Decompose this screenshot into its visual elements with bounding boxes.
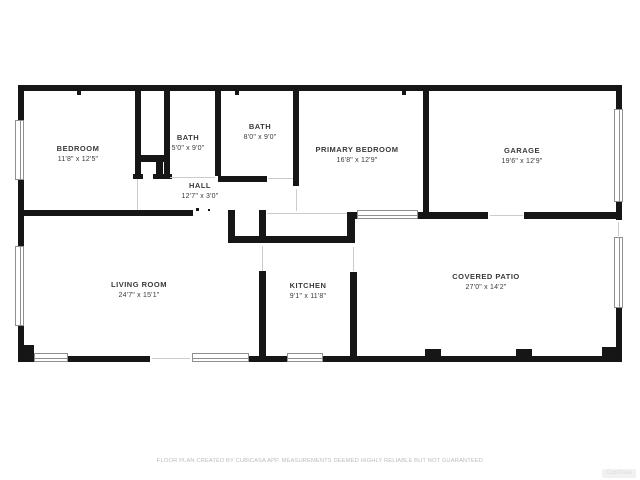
exterior-wall-top: [18, 85, 622, 91]
room-label-garage: GARAGE 19'6" x 12'9": [502, 146, 543, 166]
interior-wall-bath2-bottom: [218, 176, 267, 182]
patio-post: [425, 349, 441, 357]
interior-wall-bath-divider: [215, 91, 221, 176]
hall-opening: [267, 213, 347, 214]
patio-post: [516, 349, 532, 357]
window: [192, 353, 249, 362]
primary-bedroom-door-opening: [296, 189, 297, 211]
wall-end-cap: [133, 174, 143, 179]
door-opening: [618, 222, 619, 236]
room-name: PRIMARY BEDROOM: [316, 145, 399, 156]
door-opening: [152, 358, 190, 359]
window: [287, 353, 323, 362]
interior-wall-garage-left: [423, 91, 429, 219]
interior-wall-primary-left: [293, 91, 299, 186]
room-dims: 5'0" x 9'0": [172, 144, 205, 153]
room-name: HALL: [182, 181, 219, 192]
wall-tick: [77, 91, 81, 95]
window: [15, 246, 24, 326]
room-dims: 16'8" x 12'9": [316, 156, 399, 165]
room-dims: 9'1" x 11'8": [290, 292, 327, 301]
kitchen-patio-opening: [353, 247, 354, 271]
room-name: GARAGE: [502, 146, 543, 157]
patio-screen: [614, 237, 623, 308]
sliding-door-opening: [150, 356, 192, 362]
room-label-bath-2: BATH 8'0" x 9'0": [244, 122, 277, 142]
interior-wall-living-top: [18, 210, 193, 216]
room-dims: 24'7" x 15'1": [111, 291, 167, 300]
room-dims: 11'8" x 12'5": [57, 155, 100, 164]
room-label-covered-patio: COVERED PATIO 27'0" x 14'2": [452, 272, 519, 292]
room-label-bath-1: BATH 5'0" x 9'0": [172, 133, 205, 153]
interior-wall-kitchen-left: [259, 271, 266, 362]
room-label-bedroom: BEDROOM 11'8" x 12'5": [57, 144, 100, 164]
room-dims: 12'7" x 3'0": [182, 192, 219, 201]
room-label-primary-bedroom: PRIMARY BEDROOM 16'8" x 12'9": [316, 145, 399, 165]
window: [34, 353, 68, 362]
disclaimer-text: FLOOR PLAN CREATED BY CUBICASA APP. MEAS…: [0, 458, 640, 464]
room-label-hall: HALL 12'7" x 3'0": [182, 181, 219, 201]
wall-tick: [235, 91, 239, 95]
patio-side-opening: [616, 220, 622, 237]
room-name: KITCHEN: [290, 281, 327, 292]
room-name: LIVING ROOM: [111, 280, 167, 291]
wall-tick: [402, 91, 406, 95]
room-dims: 27'0" x 14'2": [452, 283, 519, 292]
door-jamb-tick: [196, 208, 199, 211]
garage-door: [614, 109, 623, 202]
bath-door-opening: [268, 178, 293, 179]
room-name: COVERED PATIO: [452, 272, 519, 283]
bath-door-opening: [170, 177, 215, 178]
watermark-badge: CubiCasa: [602, 469, 636, 478]
bedroom-door-opening: [137, 179, 138, 210]
door-opening: [490, 215, 523, 216]
floor-plan-canvas: BEDROOM 11'8" x 12'5" BATH 5'0" x 9'0" B…: [0, 0, 640, 480]
room-dims: 19'6" x 12'9": [502, 157, 543, 166]
room-name: BATH: [244, 122, 277, 133]
room-name: BEDROOM: [57, 144, 100, 155]
corner-block-bottom-left: [18, 345, 34, 362]
interior-wall-kitchen-top: [228, 236, 355, 243]
window: [15, 120, 24, 180]
corner-block-bottom-right: [602, 347, 622, 362]
interior-wall-bedroom-right: [135, 91, 141, 157]
room-label-living-room: LIVING ROOM 24'7" x 15'1": [111, 280, 167, 300]
door-jamb-tick: [208, 209, 210, 211]
room-name: BATH: [172, 133, 205, 144]
interior-wall-kitchen-patio: [350, 272, 357, 362]
kitchen-entry-opening: [262, 246, 263, 271]
interior-wall-bath1-left: [164, 91, 170, 179]
window: [357, 210, 418, 219]
room-label-kitchen: KITCHEN 9'1" x 11'8": [290, 281, 327, 301]
room-dims: 8'0" x 9'0": [244, 133, 277, 142]
